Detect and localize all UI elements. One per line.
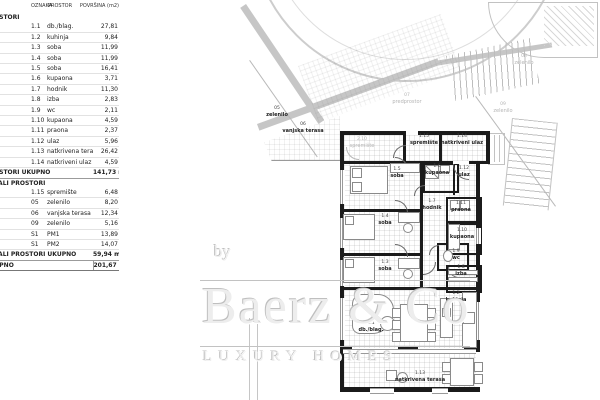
table-cell <box>0 198 31 208</box>
table-cell: db./blag. <box>47 22 93 32</box>
table-row: 1.4soba11,99 <box>0 53 119 63</box>
table-cell <box>0 229 31 239</box>
table-cell: 1.9 <box>31 105 47 115</box>
table-cell <box>0 157 31 167</box>
table-row: 09zelenilo5,16 <box>0 219 119 229</box>
table-row: 1.8izba2,83 <box>0 95 119 105</box>
room-name: hodnik <box>422 205 441 212</box>
table-cell: izba <box>47 95 93 105</box>
table-cell: kuhinja <box>47 32 93 42</box>
chair-symbol <box>392 308 401 318</box>
table-row: 1.1db./blag.27,81 <box>0 22 119 32</box>
table-cell <box>0 126 31 136</box>
room-name: wc <box>452 255 460 262</box>
table-row: 1.10kupaona4,59 <box>0 116 119 126</box>
table-row: 1.3soba11,99 <box>0 43 119 53</box>
pillow-symbol <box>345 259 354 268</box>
room-label-r114: 1.14natkriveni ulaz <box>441 134 483 147</box>
room-name: db./blag. <box>358 327 383 334</box>
room-label-r112: 1.12ulaz <box>458 166 470 179</box>
table-cell: 141,73 m² <box>93 168 119 178</box>
table-cell: 1.13 <box>31 147 47 157</box>
table-cell: 27,81 <box>93 22 119 32</box>
table-row: 05zelenilo8,20 <box>0 198 119 208</box>
table-row: 1.14natkriveni ulaz4,59 <box>0 157 119 167</box>
room-name: spremište <box>350 143 375 150</box>
room-name: kupaona <box>450 234 474 241</box>
room-label-r12: 1.2kuhinja <box>446 291 467 304</box>
table-cell: wc <box>47 105 93 115</box>
room-label-o06: 06vanjska terasa <box>282 122 323 135</box>
room-name: zelenilo <box>266 112 288 119</box>
room-name: kuhinja <box>446 297 467 304</box>
table-cell: soba <box>47 43 93 53</box>
table-cell: zelenilo <box>47 219 93 229</box>
table-cell: 14,07 <box>93 239 119 249</box>
table-cell: 2,37 <box>93 126 119 136</box>
floor-plan-page: OZNAKA PROSTOR POVRŠINA (m2) PROSTORI1.1… <box>0 0 600 400</box>
room-name: predprostor <box>392 99 421 106</box>
room-name: izba <box>455 271 467 278</box>
table-cell: 2,83 <box>93 95 119 105</box>
table-cell <box>0 136 31 146</box>
table-row: 1.5soba16,41 <box>0 64 119 74</box>
table-cell: kupaona <box>47 74 93 84</box>
window <box>343 349 476 354</box>
table-cell: soba <box>47 53 93 63</box>
table-cell <box>0 105 31 115</box>
room-label-r19: 1.9wc <box>452 249 460 262</box>
room-name: soba <box>390 173 403 180</box>
table-row: 1.9wc2,11 <box>0 105 119 115</box>
kitchen-island-symbol <box>440 298 453 338</box>
table-cell: spremište <box>47 188 93 198</box>
pillow-symbol <box>352 182 362 192</box>
room-label-r113: 1.13natkrivena terasa <box>395 371 445 384</box>
wall <box>340 387 480 392</box>
column-header-prostor: PROSTOR <box>48 3 72 9</box>
table-cell <box>0 188 31 198</box>
table-cell <box>0 147 31 157</box>
window <box>432 388 448 394</box>
neighbor-terrace-hatch <box>544 6 594 46</box>
column-header-povrsina: POVRŠINA (m2) <box>80 3 119 9</box>
table-row: 1.6kupaona3,71 <box>0 74 119 84</box>
table-row: S1PM113,89 <box>0 229 119 239</box>
table-cell: 59,94 m² <box>93 250 119 260</box>
stove-symbol <box>463 312 475 324</box>
table-cell: 1.1 <box>31 22 47 32</box>
chair-symbol <box>427 332 436 342</box>
room-name: zelenilo <box>514 60 533 67</box>
table-cell: 6,48 <box>93 188 119 198</box>
room-label-g07: 07predprostor <box>392 93 421 106</box>
table-cell: 1.15 <box>31 188 47 198</box>
table-cell: 1.11 <box>31 126 47 136</box>
table-cell <box>0 84 31 94</box>
chair-symbol <box>392 332 401 342</box>
table-cell: 09 <box>31 219 47 229</box>
table-row: 1.11praona2,37 <box>0 126 119 136</box>
room-name: vanjska terasa <box>282 128 323 135</box>
table-row: 1.7hodnik11,30 <box>0 84 119 94</box>
window <box>339 298 345 340</box>
room-label-r14: 1.4soba <box>378 214 391 227</box>
room-name: kupaona <box>425 170 449 177</box>
room-label-g08: 08zelenilo <box>514 54 533 67</box>
table-cell: 1.7 <box>31 84 47 94</box>
wall <box>340 352 343 392</box>
table-cell: 26,42 <box>93 147 119 157</box>
table-row: 1.13natkrivena terasa26,42 <box>0 147 119 157</box>
room-label-r15: 1.5soba <box>390 167 403 180</box>
table-cell: 2,11 <box>93 105 119 115</box>
table-row: S1PM214,07 <box>0 239 119 249</box>
table-cell: 5,16 <box>93 219 119 229</box>
entry-steps <box>489 135 504 162</box>
room-label-r111: 1.11praona <box>451 201 471 214</box>
table-cell: 1.6 <box>31 74 47 84</box>
desk-symbol <box>398 212 420 223</box>
table-cell: OSTALI PROSTORI <box>0 178 119 188</box>
table-cell: 4,59 <box>93 157 119 167</box>
table-row: 1.12ulaz5,96 <box>0 136 119 146</box>
room-name: soba <box>378 266 391 273</box>
table-cell: 12,34 <box>93 208 119 218</box>
table-cell: 11,30 <box>93 84 119 94</box>
table-row: OSTALI PROSTORI UKUPNO59,94 m² <box>0 250 119 260</box>
table-cell: 06 <box>31 208 47 218</box>
table-cell: 1.5 <box>31 64 47 74</box>
room-label-g210: 2.10spremište <box>350 137 375 150</box>
room-name: spremište <box>410 140 438 147</box>
dining-table-symbol <box>400 304 428 342</box>
table-cell: 3,71 <box>93 74 119 84</box>
chair-symbol <box>403 223 413 233</box>
table-cell: 16,41 <box>93 64 119 74</box>
table-cell <box>0 43 31 53</box>
chair-symbol <box>474 362 483 372</box>
table-cell: natkriveni ulaz <box>47 157 93 167</box>
table-cell: 11,99 <box>93 43 119 53</box>
pillow-symbol <box>345 216 354 225</box>
table-cell: S1 <box>31 229 47 239</box>
table-cell: PM1 <box>47 229 93 239</box>
table-cell: 13,89 <box>93 229 119 239</box>
table-cell <box>0 32 31 42</box>
table-cell <box>0 219 31 229</box>
room-label-r115: 1.15spremište <box>410 134 438 147</box>
table-cell: 1.3 <box>31 43 47 53</box>
sink-symbol <box>442 308 451 317</box>
table-row: PROSTORI <box>0 13 119 22</box>
room-label-r110: 1.10kupaona <box>450 228 474 241</box>
room-label-r13: 1.3soba <box>378 260 391 273</box>
table-row: 1.15spremište6,48 <box>0 188 119 198</box>
table-cell: PROSTORI <box>0 13 119 22</box>
chair-symbol <box>474 374 483 384</box>
table-cell: 05 <box>31 198 47 208</box>
table-cell <box>0 74 31 84</box>
table-row: 06vanjska terasa12,34 <box>0 208 119 218</box>
window <box>370 388 394 394</box>
table-cell: 1.4 <box>31 53 47 63</box>
table-cell: 1.12 <box>31 136 47 146</box>
outdoor-table-symbol <box>450 358 474 386</box>
table-cell: 11,99 <box>93 53 119 63</box>
room-name: natkriveni ulaz <box>441 140 483 147</box>
table-cell: ulaz <box>47 136 93 146</box>
room-name: ulaz <box>458 172 470 179</box>
table-cell: UKUPNO <box>0 260 93 270</box>
table-cell: 1.14 <box>31 157 47 167</box>
window <box>475 228 481 244</box>
chair-symbol <box>392 320 401 330</box>
table-cell <box>0 208 31 218</box>
table-cell: 8,20 <box>93 198 119 208</box>
table-cell <box>0 53 31 63</box>
wall <box>340 253 423 256</box>
curb-line <box>249 318 250 400</box>
watermark-by: by <box>214 242 231 262</box>
room-label-r17: 1.7hodnik <box>422 199 441 212</box>
room-name: zelenilo <box>493 108 512 115</box>
table-cell: 1.10 <box>31 116 47 126</box>
table-cell: kupaona <box>47 116 93 126</box>
table-cell: soba <box>47 64 93 74</box>
room-label-r11: 1.1db./blag. <box>358 321 383 334</box>
chair-symbol <box>427 308 436 318</box>
room-label-o05: 05zelenilo <box>266 106 288 119</box>
area-table-grid: PROSTORI1.1db./blag.27,811.2kuhinja9,841… <box>0 13 119 271</box>
room-label-g09: 09zelenilo <box>493 102 512 115</box>
chair-symbol <box>427 320 436 330</box>
table-cell: natkrivena terasa <box>47 147 93 157</box>
room-name: natkrivena terasa <box>395 377 445 384</box>
table-cell <box>0 95 31 105</box>
table-cell: 9,84 <box>93 32 119 42</box>
table-row: OSTALI PROSTORI <box>0 178 119 188</box>
room-label-r16: 1.6kupaona <box>425 164 449 177</box>
room-name: soba <box>378 220 391 227</box>
table-cell: praona <box>47 126 93 136</box>
wall <box>486 131 490 163</box>
table-row: UKUPNO201,67 m² <box>0 260 119 270</box>
table-cell: S1 <box>31 239 47 249</box>
table-cell: 1.8 <box>31 95 47 105</box>
table-cell: 201,67 m² <box>93 260 119 270</box>
desk-symbol <box>398 258 420 269</box>
room-label-r18: 1.8izba <box>455 265 467 278</box>
table-cell: 5,96 <box>93 136 119 146</box>
table-cell <box>0 22 31 32</box>
table-row: 1.2kuhinja9,84 <box>0 32 119 42</box>
table-cell <box>0 116 31 126</box>
room-name: praona <box>451 207 471 214</box>
curb-line <box>257 318 258 400</box>
window <box>339 170 345 204</box>
table-row: PROSTORI UKUPNO141,73 m² <box>0 168 119 178</box>
table-cell: zelenilo <box>47 198 93 208</box>
chair-symbol <box>403 269 413 279</box>
pillow-symbol <box>352 168 362 178</box>
table-cell: 1.2 <box>31 32 47 42</box>
table-cell <box>0 64 31 74</box>
area-table: OZNAKA PROSTOR POVRŠINA (m2) PROSTORI1.1… <box>0 1 119 271</box>
area-table-header: OZNAKA PROSTOR POVRŠINA (m2) <box>0 1 119 13</box>
table-cell <box>0 239 31 249</box>
table-cell: 4,59 <box>93 116 119 126</box>
table-cell: PM2 <box>47 239 93 249</box>
table-cell: OSTALI PROSTORI UKUPNO <box>0 250 93 260</box>
table-cell: PROSTORI UKUPNO <box>0 168 93 178</box>
table-cell: hodnik <box>47 84 93 94</box>
table-cell: vanjska terasa <box>47 208 93 218</box>
